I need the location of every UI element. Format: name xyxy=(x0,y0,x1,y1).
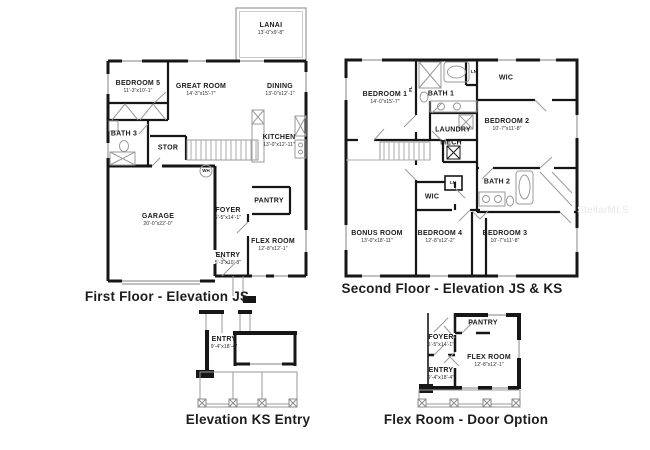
room-label-laundry: LAUNDRY xyxy=(435,127,471,134)
room-name: PANTRY xyxy=(468,320,498,327)
room-name: LN xyxy=(450,181,456,186)
room-dims: 13'-0"x9'-8" xyxy=(258,30,284,36)
room-name: BEDROOM 3 xyxy=(483,230,528,237)
room-name: KITCHEN xyxy=(263,134,296,141)
room-name: STOR xyxy=(158,145,178,152)
room-label-great-room: GREAT ROOM 14'-3"x15'-7" xyxy=(176,83,226,97)
room-label-bath2: BATH 2 xyxy=(484,179,510,186)
first-floor-linework xyxy=(108,8,306,303)
room-name: FOYER xyxy=(215,207,241,214)
bath3-fixtures xyxy=(109,121,135,165)
room-label-foyer: FOYER 5'-5"x14'-1" xyxy=(215,207,241,221)
room-label-bedroom1: BEDROOM 1 14'-0"x15'-7" xyxy=(363,91,408,105)
bath2-fixtures xyxy=(479,171,572,206)
room-label-bath1: BATH 1 xyxy=(428,91,454,98)
room-dims: 9'-4"x18'-4" xyxy=(211,344,237,350)
room-name: BEDROOM 5 xyxy=(116,80,161,87)
room-dims: 5'-3"x10'-8" xyxy=(215,260,241,266)
room-label-stor: STOR xyxy=(158,145,178,152)
bath1-fixtures xyxy=(419,62,477,112)
room-label-lanai: LANAI 13'-0"x9'-8" xyxy=(258,22,284,36)
room-name: BATH 2 xyxy=(484,179,510,186)
room-label-bonus-room: BONUS ROOM 13'-0"x18'-11" xyxy=(351,230,403,244)
room-label-wic-upper: WIC xyxy=(499,75,513,82)
room-label-ln-lower: LN xyxy=(450,181,456,186)
room-name: ENTRY xyxy=(428,367,454,374)
room-dims: 11'-3"x10'-1" xyxy=(116,88,161,94)
room-label-mech: MECH xyxy=(440,140,462,147)
room-label-garage: GARAGE 20'-0"x22'-0" xyxy=(142,213,174,227)
room-name: LN xyxy=(471,70,477,75)
flex-option-caption: Flex Room - Door Option xyxy=(384,412,548,427)
room-name: BONUS ROOM xyxy=(351,230,403,237)
room-name: BEDROOM 1 xyxy=(363,91,408,98)
room-label-option-pantry: PANTRY xyxy=(468,320,498,327)
room-label-bedroom2: BEDROOM 2 10'-7"x11'-8" xyxy=(485,118,530,132)
room-name: WH xyxy=(202,169,210,174)
room-name: DINING xyxy=(265,83,294,90)
room-name: BEDROOM 4 xyxy=(418,230,463,237)
room-dims: 12'-8"x12'-1" xyxy=(467,362,511,368)
room-name: MECH xyxy=(440,140,462,147)
room-dims: 14'-0"x15'-7" xyxy=(363,99,408,105)
room-name: GARAGE xyxy=(142,213,174,220)
room-label-option-flex-room: FLEX ROOM 12'-8"x12'-1" xyxy=(467,354,511,368)
room-name: WIC xyxy=(499,75,513,82)
room-label-option-foyer: FOYER 5'-5"x14'-1" xyxy=(428,334,454,348)
room-label-bath3: BATH 3 xyxy=(111,131,137,138)
room-label-fl: FL xyxy=(409,86,414,92)
room-label-entry: ENTRY 5'-3"x10'-8" xyxy=(215,252,241,266)
room-label-ln-upper: LN xyxy=(471,70,477,75)
room-name: FOYER xyxy=(428,334,454,341)
room-dims: 5'-5"x14'-1" xyxy=(215,215,241,221)
room-dims: 14'-3"x15'-7" xyxy=(176,91,226,97)
room-name: LAUNDRY xyxy=(435,127,471,134)
room-label-bedroom5: BEDROOM 5 11'-3"x10'-1" xyxy=(116,80,161,94)
room-dims: 9'-4"x18'-4" xyxy=(428,375,454,381)
room-name: LANAI xyxy=(258,22,284,29)
room-dims: 13'-0"x12'-11" xyxy=(263,142,296,148)
room-dims: 13'-0"x12'-1" xyxy=(265,91,294,97)
room-label-kitchen: KITCHEN 13'-0"x12'-11" xyxy=(263,134,296,148)
room-dims: 20'-0"x22'-0" xyxy=(142,221,174,227)
watermark: StellarMLS xyxy=(577,205,629,216)
room-label-wic-lower: WIC xyxy=(425,194,439,201)
floorplan-page: LANAI 13'-0"x9'-8" BEDROOM 5 11'-3"x10'-… xyxy=(0,0,650,450)
room-dims: 12'-8"x12'-2" xyxy=(418,238,463,244)
room-label-dining: DINING 13'-0"x12'-1" xyxy=(265,83,294,97)
room-label-ks-entry: ENTRY 9'-4"x18'-4" xyxy=(211,336,237,350)
room-label-bedroom4: BEDROOM 4 12'-8"x12'-2" xyxy=(418,230,463,244)
floorplan-linework xyxy=(0,0,650,450)
room-name: ENTRY xyxy=(215,252,241,259)
room-dims: 12'-8"x12'-1" xyxy=(251,246,295,252)
room-dims: 10'-7"x11'-8" xyxy=(485,126,530,132)
room-dims: 10'-7"x11'-8" xyxy=(483,238,528,244)
laundry-mech-fixtures xyxy=(447,115,473,159)
room-label-pantry: PANTRY xyxy=(254,198,284,205)
first-floor-caption: First Floor - Elevation JS xyxy=(85,289,249,304)
room-name: FLEX ROOM xyxy=(467,354,511,361)
ks-entry-linework xyxy=(196,312,297,407)
room-label-wh: WH xyxy=(202,169,210,174)
room-name: PANTRY xyxy=(254,198,284,205)
room-name: BATH 1 xyxy=(428,91,454,98)
room-name: BATH 3 xyxy=(111,131,137,138)
room-name: GREAT ROOM xyxy=(176,83,226,90)
room-dims: 5'-5"x14'-1" xyxy=(428,342,454,348)
room-name: FLEX ROOM xyxy=(251,238,295,245)
room-dims: 13'-0"x18'-11" xyxy=(351,238,403,244)
second-floor-caption: Second Floor - Elevation JS & KS xyxy=(342,281,563,296)
room-name: FL xyxy=(409,86,414,92)
room-name: BEDROOM 2 xyxy=(485,118,530,125)
room-name: WIC xyxy=(425,194,439,201)
room-label-flex-room: FLEX ROOM 12'-8"x12'-1" xyxy=(251,238,295,252)
room-label-option-entry: ENTRY 9'-4"x18'-4" xyxy=(428,367,454,381)
ks-entry-caption: Elevation KS Entry xyxy=(186,412,310,427)
room-label-bedroom3: BEDROOM 3 10'-7"x11'-8" xyxy=(483,230,528,244)
room-name: ENTRY xyxy=(211,336,237,343)
